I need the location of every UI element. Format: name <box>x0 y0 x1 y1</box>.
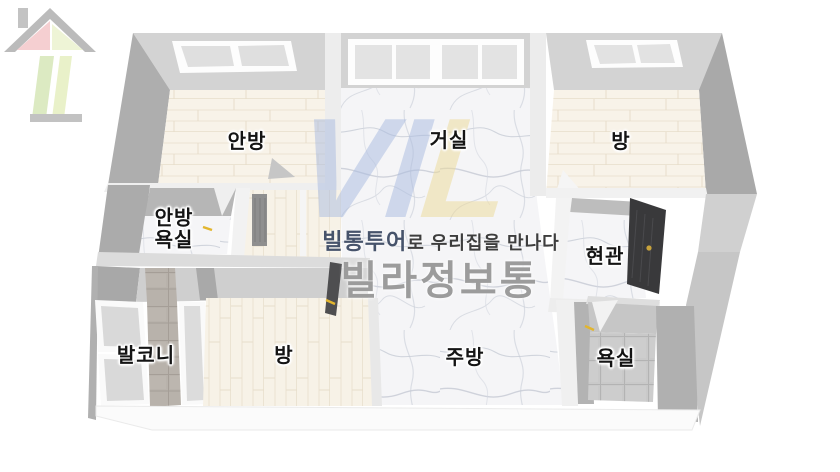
house-base <box>30 114 82 122</box>
house-chimney <box>18 8 28 28</box>
room-label-bang-bottom: 방 <box>274 346 293 368</box>
watermark-brand-name: 빌라정보통 <box>341 248 540 306</box>
room-label-jubang: 주방 <box>446 348 485 370</box>
floor-plan-render: VIL 빌통투어로 우리집을 만나다 빌라정보통 안방 거실 방 안방욕실 현관… <box>0 0 840 472</box>
house-bar-green <box>32 56 54 118</box>
room-label-geosil: 거실 <box>430 131 469 153</box>
watermark-logo-letters: VIL <box>290 98 514 238</box>
room-label-anbang-yoksil: 안방욕실 <box>150 208 198 251</box>
room-label-hyeongwan: 현관 <box>586 247 625 269</box>
watermark: VIL 빌통투어로 우리집을 만나다 빌라정보통 <box>0 0 840 472</box>
room-label-balkoni: 발코니 <box>117 346 175 368</box>
room-label-yoksil: 욕실 <box>597 349 636 371</box>
house-logo-icon <box>0 0 100 125</box>
house-bar-lime <box>52 56 72 118</box>
room-label-anbang: 안방 <box>228 132 267 154</box>
room-label-bang-top: 방 <box>611 132 630 154</box>
